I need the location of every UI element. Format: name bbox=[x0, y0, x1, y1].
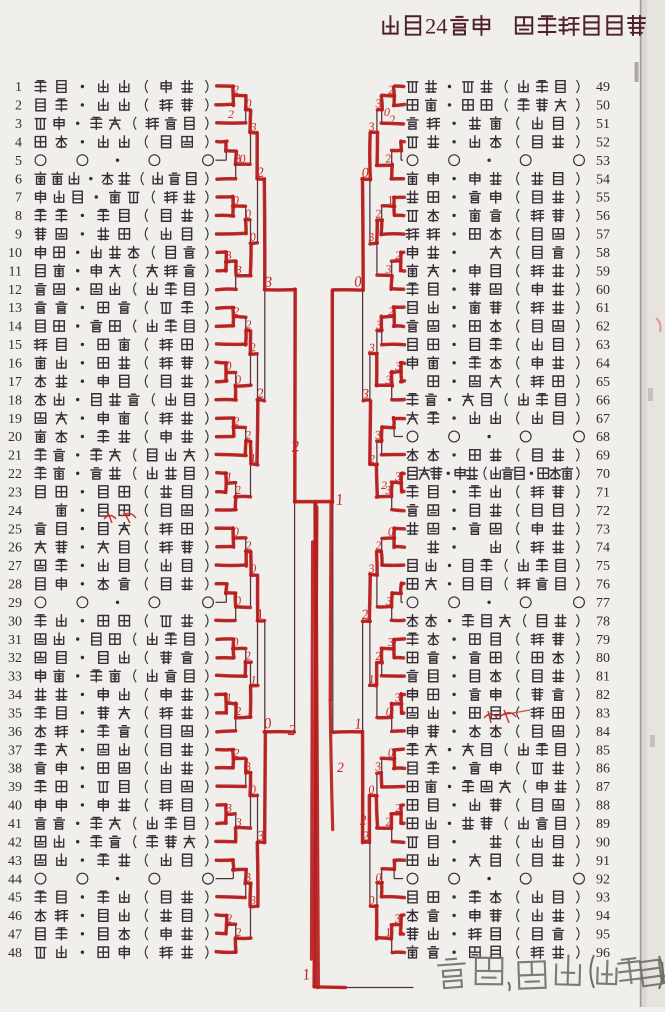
svg-text:1: 1 bbox=[226, 690, 233, 704]
svg-text:66: 66 bbox=[596, 393, 610, 408]
svg-text:2: 2 bbox=[233, 414, 239, 428]
svg-text:30: 30 bbox=[8, 614, 22, 629]
svg-text:3: 3 bbox=[374, 96, 382, 111]
svg-text:3: 3 bbox=[384, 262, 392, 276]
svg-text:3: 3 bbox=[361, 387, 369, 402]
svg-text:14: 14 bbox=[8, 320, 22, 335]
svg-text:96: 96 bbox=[596, 946, 610, 961]
svg-text:88: 88 bbox=[596, 799, 610, 814]
svg-text:61: 61 bbox=[596, 301, 610, 316]
svg-text:2: 2 bbox=[288, 723, 296, 739]
svg-text:3: 3 bbox=[225, 801, 233, 815]
svg-text:2: 2 bbox=[375, 538, 382, 552]
svg-text:69: 69 bbox=[596, 449, 610, 464]
svg-text:29: 29 bbox=[8, 596, 22, 611]
svg-text:25: 25 bbox=[8, 522, 22, 537]
svg-text:38: 38 bbox=[8, 762, 22, 777]
svg-text:57: 57 bbox=[596, 228, 610, 243]
svg-text:0: 0 bbox=[387, 745, 394, 759]
svg-text:45: 45 bbox=[8, 891, 22, 906]
svg-text:44: 44 bbox=[8, 872, 22, 887]
svg-text:2: 2 bbox=[233, 82, 240, 96]
svg-text:3: 3 bbox=[375, 318, 382, 332]
svg-text:81: 81 bbox=[596, 670, 610, 685]
svg-text:73: 73 bbox=[596, 522, 610, 537]
svg-text:84: 84 bbox=[596, 725, 610, 740]
svg-text:10: 10 bbox=[8, 246, 22, 261]
svg-text:39: 39 bbox=[8, 780, 22, 795]
svg-text:2: 2 bbox=[228, 107, 234, 121]
svg-text:2: 2 bbox=[395, 248, 401, 262]
svg-text:49: 49 bbox=[596, 80, 610, 95]
svg-text:9: 9 bbox=[15, 228, 22, 243]
svg-text:0: 0 bbox=[233, 524, 240, 538]
svg-text:6: 6 bbox=[15, 172, 22, 187]
svg-text:2: 2 bbox=[359, 813, 367, 829]
svg-text:2: 2 bbox=[245, 538, 251, 552]
svg-text:17: 17 bbox=[8, 375, 22, 390]
svg-text:13: 13 bbox=[8, 301, 22, 316]
svg-text:1: 1 bbox=[354, 716, 363, 732]
svg-text:76: 76 bbox=[596, 578, 610, 593]
svg-text:56: 56 bbox=[596, 209, 610, 224]
svg-text:24: 24 bbox=[8, 504, 22, 519]
svg-text:36: 36 bbox=[8, 725, 22, 740]
svg-text:28: 28 bbox=[8, 578, 22, 593]
svg-text:83: 83 bbox=[596, 707, 610, 722]
svg-text:86: 86 bbox=[596, 762, 610, 777]
svg-text:82: 82 bbox=[596, 688, 610, 703]
svg-text:37: 37 bbox=[8, 743, 22, 758]
svg-text:94: 94 bbox=[596, 909, 610, 924]
svg-text:0: 0 bbox=[376, 870, 382, 884]
svg-text:72: 72 bbox=[596, 504, 610, 519]
svg-text:21: 21 bbox=[8, 449, 22, 464]
svg-text:2: 2 bbox=[235, 704, 242, 718]
svg-text:24: 24 bbox=[425, 14, 448, 39]
svg-text:2: 2 bbox=[388, 304, 394, 318]
svg-text:7: 7 bbox=[15, 191, 22, 206]
svg-text:2: 2 bbox=[245, 317, 251, 331]
svg-text:20: 20 bbox=[8, 430, 22, 445]
svg-text:2: 2 bbox=[369, 451, 375, 465]
svg-text:16: 16 bbox=[8, 357, 22, 372]
svg-text:87: 87 bbox=[596, 780, 610, 795]
svg-text:2: 2 bbox=[226, 911, 232, 925]
svg-text:48: 48 bbox=[8, 946, 22, 961]
svg-text:2: 2 bbox=[362, 829, 369, 844]
svg-text:8: 8 bbox=[15, 209, 22, 224]
svg-text:1: 1 bbox=[335, 491, 344, 509]
svg-text:80: 80 bbox=[596, 651, 610, 666]
svg-text:31: 31 bbox=[8, 633, 22, 648]
svg-text:70: 70 bbox=[596, 467, 610, 482]
svg-text:3: 3 bbox=[15, 117, 22, 132]
svg-text:91: 91 bbox=[596, 854, 610, 869]
svg-text:0: 0 bbox=[245, 96, 252, 110]
svg-text:3: 3 bbox=[249, 120, 256, 134]
svg-text:89: 89 bbox=[596, 817, 610, 832]
svg-text:3: 3 bbox=[386, 635, 394, 650]
svg-text:46: 46 bbox=[8, 909, 22, 924]
svg-text:3: 3 bbox=[248, 893, 256, 908]
svg-text:1: 1 bbox=[226, 469, 232, 483]
svg-text:3: 3 bbox=[235, 262, 242, 276]
svg-text:0: 0 bbox=[368, 893, 375, 907]
svg-text:3: 3 bbox=[384, 373, 392, 387]
svg-text:3: 3 bbox=[367, 119, 375, 134]
svg-text:42: 42 bbox=[8, 835, 22, 850]
svg-text:63: 63 bbox=[596, 338, 610, 353]
svg-text:74: 74 bbox=[596, 541, 610, 556]
svg-text:40: 40 bbox=[8, 799, 22, 814]
svg-text:2: 2 bbox=[235, 925, 242, 939]
svg-text:18: 18 bbox=[8, 393, 22, 408]
svg-text:67: 67 bbox=[596, 412, 610, 427]
svg-text:2: 2 bbox=[388, 82, 394, 96]
svg-text:62: 62 bbox=[596, 320, 610, 335]
svg-text:93: 93 bbox=[596, 891, 610, 906]
svg-text:54: 54 bbox=[596, 172, 610, 187]
svg-text:68: 68 bbox=[596, 430, 610, 445]
svg-text:59: 59 bbox=[596, 264, 610, 279]
svg-text:2: 2 bbox=[233, 746, 239, 760]
svg-text:15: 15 bbox=[8, 338, 22, 353]
svg-text:32: 32 bbox=[8, 651, 22, 666]
svg-text:1: 1 bbox=[251, 672, 257, 686]
svg-text:3: 3 bbox=[393, 469, 401, 483]
svg-text:3: 3 bbox=[367, 561, 375, 576]
svg-text:0: 0 bbox=[387, 524, 394, 538]
svg-text:60: 60 bbox=[596, 283, 610, 298]
svg-text:3: 3 bbox=[394, 359, 401, 373]
svg-text:64: 64 bbox=[596, 357, 610, 372]
svg-text:33: 33 bbox=[8, 670, 22, 685]
svg-text:3: 3 bbox=[264, 275, 273, 291]
svg-text:95: 95 bbox=[596, 928, 610, 943]
svg-text:19: 19 bbox=[8, 412, 22, 427]
svg-text:71: 71 bbox=[596, 485, 610, 500]
svg-text:3: 3 bbox=[256, 829, 265, 844]
svg-text:85: 85 bbox=[596, 743, 610, 758]
svg-text:79: 79 bbox=[596, 633, 610, 648]
svg-text:0: 0 bbox=[233, 193, 240, 207]
svg-text:22: 22 bbox=[8, 467, 22, 482]
svg-text:55: 55 bbox=[596, 191, 610, 206]
svg-text:53: 53 bbox=[596, 154, 610, 169]
svg-text:2: 2 bbox=[395, 801, 402, 815]
svg-text:41: 41 bbox=[8, 817, 22, 832]
svg-text:47: 47 bbox=[8, 928, 22, 943]
svg-text:0: 0 bbox=[362, 166, 370, 181]
svg-text:52: 52 bbox=[596, 136, 610, 151]
svg-text:92: 92 bbox=[596, 872, 610, 887]
svg-text:78: 78 bbox=[596, 614, 610, 629]
svg-text:5: 5 bbox=[15, 154, 22, 169]
svg-text:2: 2 bbox=[233, 304, 239, 318]
svg-text:35: 35 bbox=[8, 707, 22, 722]
svg-text:1: 1 bbox=[15, 80, 22, 95]
svg-text:3: 3 bbox=[368, 341, 375, 355]
svg-text:4: 4 bbox=[15, 136, 22, 151]
svg-text:58: 58 bbox=[596, 246, 610, 261]
svg-text:3: 3 bbox=[235, 815, 242, 829]
svg-text:2: 2 bbox=[15, 99, 22, 114]
svg-text:27: 27 bbox=[8, 559, 22, 574]
svg-text:11: 11 bbox=[9, 264, 22, 279]
svg-text:12: 12 bbox=[8, 283, 22, 298]
svg-text:34: 34 bbox=[8, 688, 22, 703]
svg-text:51: 51 bbox=[596, 117, 610, 132]
svg-text:2: 2 bbox=[381, 478, 387, 492]
svg-text:26: 26 bbox=[8, 541, 22, 556]
svg-text:0: 0 bbox=[250, 561, 257, 575]
svg-text:1: 1 bbox=[368, 672, 375, 686]
svg-text:77: 77 bbox=[596, 596, 610, 611]
svg-text:2: 2 bbox=[337, 761, 344, 776]
svg-text:3: 3 bbox=[385, 594, 392, 608]
svg-text:43: 43 bbox=[8, 854, 22, 869]
svg-text:75: 75 bbox=[596, 559, 610, 574]
svg-text:0: 0 bbox=[386, 704, 392, 718]
svg-text:50: 50 bbox=[596, 99, 610, 114]
svg-text:65: 65 bbox=[596, 375, 610, 390]
svg-text:90: 90 bbox=[596, 835, 610, 850]
svg-text:23: 23 bbox=[8, 485, 22, 500]
